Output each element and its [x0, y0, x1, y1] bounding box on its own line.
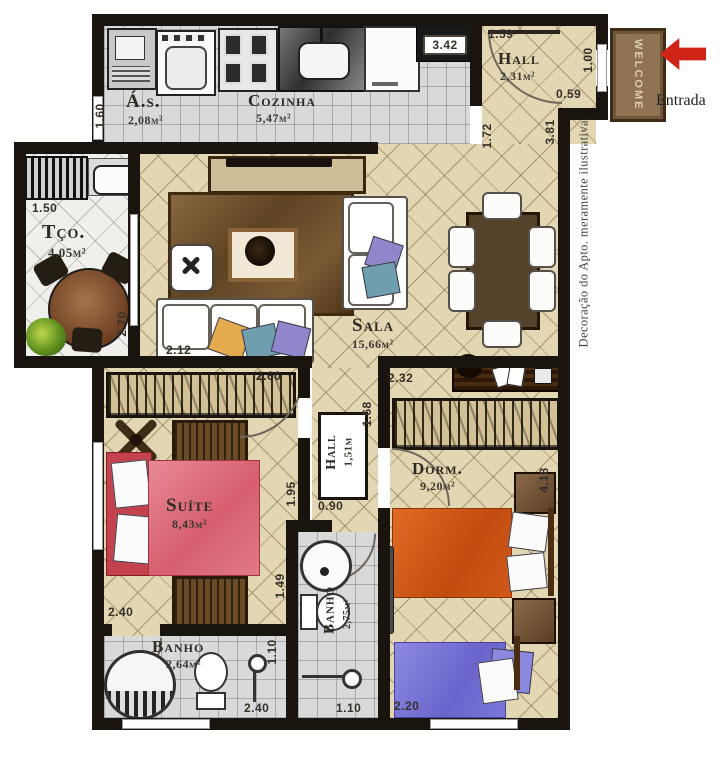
banho1-shower-icon [244, 654, 266, 706]
dim-banho2-top: 0.90 [318, 500, 343, 512]
window [93, 442, 103, 550]
dim-dorm-top: 2.32 [388, 372, 413, 384]
dorm-bed-orange [392, 508, 554, 596]
burner [250, 34, 268, 56]
dim-banho2-left-b: 1.10 [266, 639, 278, 664]
bed-headboard [514, 636, 520, 690]
bed-headboard [548, 508, 554, 596]
wall [14, 142, 378, 154]
room-label-cozinha: Cozinha [248, 92, 316, 109]
pillow-teal [361, 261, 400, 298]
dim-sofa-front: 2.12 [166, 344, 191, 356]
wall [92, 624, 112, 636]
suite-rug [172, 576, 248, 628]
entry-opening [597, 44, 607, 92]
wall [92, 356, 312, 368]
room-label-sala: Sala [352, 316, 394, 335]
room-area-tco: 4,05m² [48, 246, 86, 259]
dorm-wardrobe [392, 398, 560, 450]
doormat-label: WELCOME [632, 39, 644, 110]
kitchen-appliance: 3.42 [416, 20, 472, 62]
dim-banho2-bottom: 1.10 [336, 702, 361, 714]
room-label-tco: Tço. [42, 222, 85, 242]
wall [298, 438, 310, 532]
banho2-sink [300, 540, 352, 592]
dim-sala-right-a: 1.72 [481, 123, 493, 148]
room-area-banho2: 2,75m² [343, 599, 353, 629]
burner [224, 34, 242, 56]
dining-chair [448, 226, 476, 268]
tank-basin [115, 36, 145, 60]
faucet-icon [320, 28, 323, 42]
dim-banho1-bottom: 2.40 [244, 702, 269, 714]
fridge-handle [372, 82, 398, 86]
sideboard-books [506, 365, 525, 387]
fridge [364, 26, 420, 92]
tank-board [112, 66, 150, 82]
burner [250, 62, 268, 84]
table-plant-icon [245, 236, 275, 266]
room-area-dorm: 9,20m² [420, 480, 455, 492]
washing-machine [156, 30, 216, 96]
bed-pillow [508, 512, 551, 553]
room-area-banho1: 2,64m² [166, 658, 201, 670]
wall [470, 14, 482, 106]
bed-pillow [477, 658, 518, 705]
stove [218, 28, 278, 92]
room-area-hall-int: 1,51m [344, 437, 355, 466]
terrace-chair [71, 327, 103, 353]
room-label-hall-entry: Hall [498, 50, 540, 67]
sideboard-frame [534, 368, 552, 384]
coffee-table [228, 228, 298, 282]
washer-controls [162, 35, 206, 41]
room-area-hall-entry: 2,31m² [500, 70, 535, 82]
dim-as-left: 1.60 [94, 103, 106, 128]
room-area-cozinha: 5,47m² [256, 112, 291, 124]
dining-chair [482, 320, 522, 348]
kitchen-sink [298, 42, 350, 80]
window [122, 719, 210, 729]
bed-blanket [392, 508, 512, 598]
room-label-banho2: Banho [323, 586, 338, 634]
wall [160, 624, 298, 636]
bed-pillow [506, 552, 548, 592]
room-label-suite: Suíte [166, 496, 213, 515]
dim-entry-door: 1.00 [582, 47, 594, 72]
dim-terrace-right: 2.70 [116, 311, 128, 336]
room-area-suite: 8,43m² [172, 518, 207, 530]
dim-sala-right-b: 3.81 [544, 119, 556, 144]
wall [378, 508, 390, 730]
wall [558, 118, 570, 730]
dim-hall-int-right: 1.68 [361, 401, 373, 426]
floor-plan: 3.42 [0, 0, 720, 768]
dining-chair [528, 226, 556, 268]
banho2-shower-icon [302, 666, 362, 690]
washer-door [165, 46, 207, 90]
room-label-banho1: Banho [152, 638, 204, 655]
terrace-door [130, 214, 138, 326]
dim-terrace-top: 1.50 [32, 202, 57, 214]
wall [298, 368, 310, 398]
dim-banho2-left-a: 1.49 [274, 573, 286, 598]
bed-pillow [111, 459, 152, 509]
dim-dorm-right: 4.18 [538, 467, 550, 492]
entrance-arrow-icon [660, 38, 706, 70]
plant-icon [26, 318, 66, 356]
wall [92, 14, 608, 26]
dim-hall-top: 1.59 [488, 28, 513, 40]
side-table [170, 244, 214, 292]
dim-hall-side: 0.59 [556, 88, 581, 100]
room-area-as: 2,08m² [128, 114, 163, 126]
tv-icon [226, 158, 332, 167]
burner [224, 62, 242, 84]
dining-chair [528, 270, 556, 312]
wall [14, 142, 26, 368]
dim-suite-top: 2.60 [256, 370, 281, 382]
wall [298, 520, 332, 532]
dim-kitchen-width: 3.42 [423, 35, 467, 55]
laundry-tank [107, 28, 157, 90]
wall [378, 356, 570, 368]
disclaimer-text: Decoração do Apto. meramente ilustrativa… [577, 117, 592, 348]
window [430, 719, 518, 729]
suite-bed-headboard [106, 452, 152, 576]
entrance-label: Entrada [656, 92, 706, 110]
loveseat [342, 196, 408, 310]
dim-dorm-bottom: 2.20 [394, 700, 419, 712]
room-area-sala: 15,66m² [352, 338, 394, 350]
dim-hall-int-left: 1.95 [285, 481, 297, 506]
dining-chair [448, 270, 476, 312]
terrace-blinds [22, 156, 88, 200]
room-label-dorm: Dorm. [412, 460, 463, 477]
dining-chair [482, 192, 522, 220]
room-label-as: Á.s. [126, 92, 160, 111]
dim-suite-bottom: 2.40 [108, 606, 133, 618]
kitchen-counter [278, 26, 366, 92]
room-label-hall-int: Hall [325, 434, 339, 469]
